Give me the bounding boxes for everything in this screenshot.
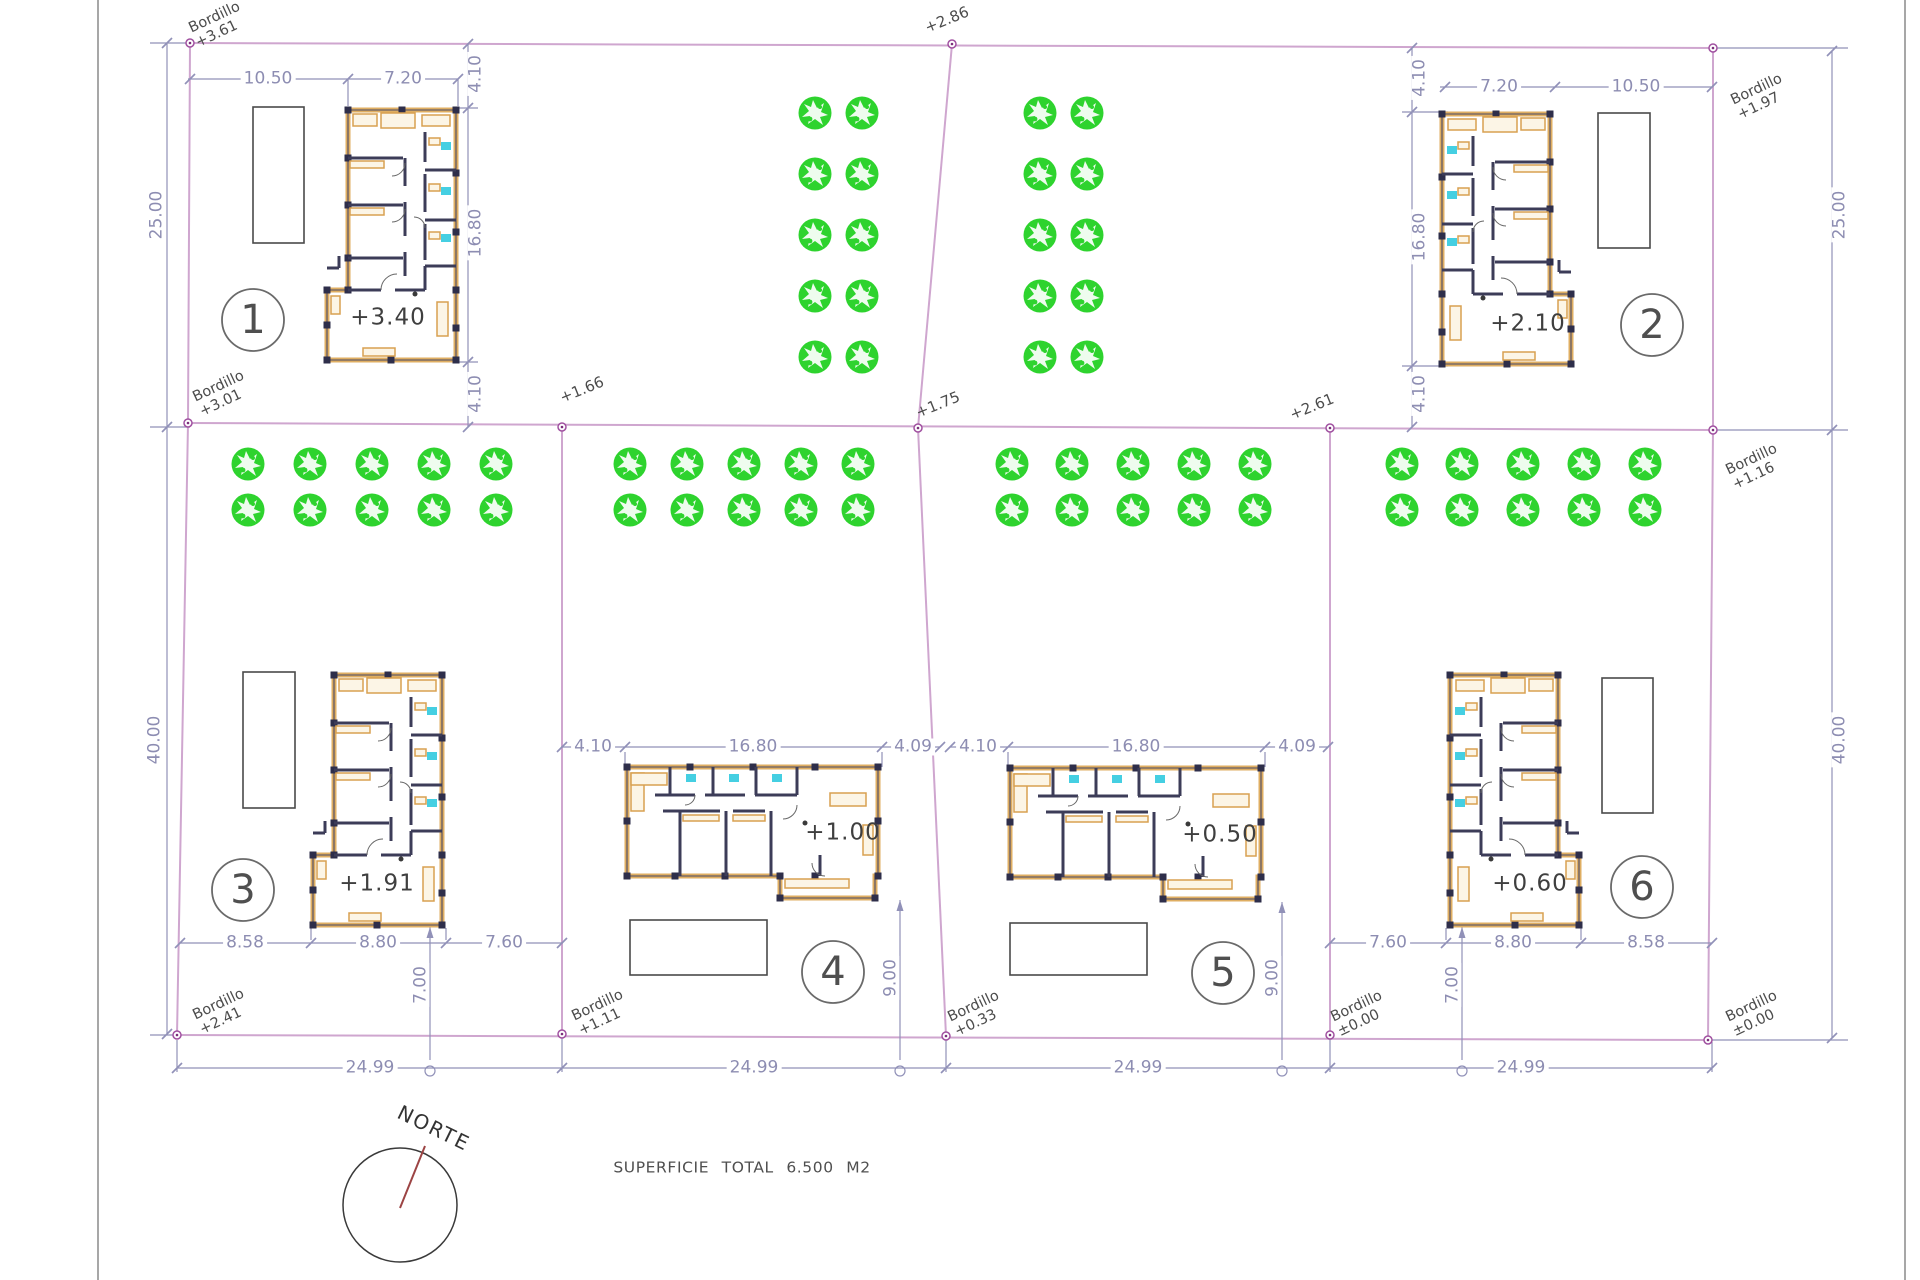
dim-plot2-e: 4.10 (1412, 372, 1429, 416)
floor-level-plot2: +2.10 (1490, 313, 1565, 336)
dim-plot1-b: 7.20 (381, 71, 425, 88)
dim-plot1-e: 4.10 (468, 372, 485, 416)
dim-plot4-d: 9.00 (883, 956, 900, 1000)
plot-number-1: 1 (240, 300, 265, 340)
site-dim-left-bottom: 40.00 (147, 713, 164, 768)
dim-plot3-a: 8.58 (223, 935, 267, 952)
site-plan-linework (0, 0, 1920, 1280)
total-area-label: SUPERFICIE TOTAL 6.500 M2 (613, 1160, 870, 1176)
dim-plot1-d: 16.80 (468, 206, 485, 261)
plot-number-6: 6 (1629, 867, 1654, 907)
dim-plot1-c: 4.10 (468, 52, 485, 96)
dim-plot4-a: 4.10 (571, 739, 615, 756)
site-dim-right-top: 25.00 (1832, 188, 1849, 243)
site-dim-left-top: 25.00 (149, 188, 166, 243)
dim-plot6-b: 8.80 (1491, 935, 1535, 952)
dim-plot1-a: 10.50 (241, 71, 296, 88)
dim-plot5-b: 16.80 (1109, 739, 1164, 756)
site-dim-bottom-3: 24.99 (1111, 1060, 1166, 1077)
site-dim-bottom-2: 24.99 (727, 1060, 782, 1077)
site-dim-bottom-1: 24.99 (343, 1060, 398, 1077)
dim-plot3-c: 7.60 (482, 935, 526, 952)
dim-plot5-c: 4.09 (1275, 739, 1319, 756)
dim-plot6-d: 7.00 (1445, 963, 1462, 1007)
dim-plot2-b: 10.50 (1609, 79, 1664, 96)
dim-plot6-c: 8.58 (1624, 935, 1668, 952)
floor-level-plot1: +3.40 (350, 307, 425, 330)
dim-plot4-c: 4.09 (891, 739, 935, 756)
plot-number-5: 5 (1210, 953, 1235, 993)
plot-number-2: 2 (1639, 305, 1664, 345)
floor-level-plot4: +1.00 (805, 822, 880, 845)
floor-level-plot5: +0.50 (1182, 824, 1257, 847)
dim-plot2-a: 7.20 (1477, 79, 1521, 96)
dim-plot6-a: 7.60 (1366, 935, 1410, 952)
site-dim-bottom-4: 24.99 (1494, 1060, 1549, 1077)
site-dim-right-bottom: 40.00 (1832, 713, 1849, 768)
floor-level-plot6: +0.60 (1492, 873, 1567, 896)
dim-plot5-a: 4.10 (956, 739, 1000, 756)
dim-plot3-d: 7.00 (413, 963, 430, 1007)
site-plan-sheet: 25.00 40.00 25.00 40.00 24.99 24.99 24.9… (0, 0, 1920, 1280)
dim-plot5-d: 9.00 (1265, 956, 1282, 1000)
dim-plot2-c: 4.10 (1412, 56, 1429, 100)
floor-level-plot3: +1.91 (339, 873, 414, 896)
dim-plot3-b: 8.80 (356, 935, 400, 952)
dim-plot4-b: 16.80 (726, 739, 781, 756)
plot-number-3: 3 (230, 870, 255, 910)
plot-number-4: 4 (820, 952, 845, 992)
dim-plot2-d: 16.80 (1412, 210, 1429, 265)
